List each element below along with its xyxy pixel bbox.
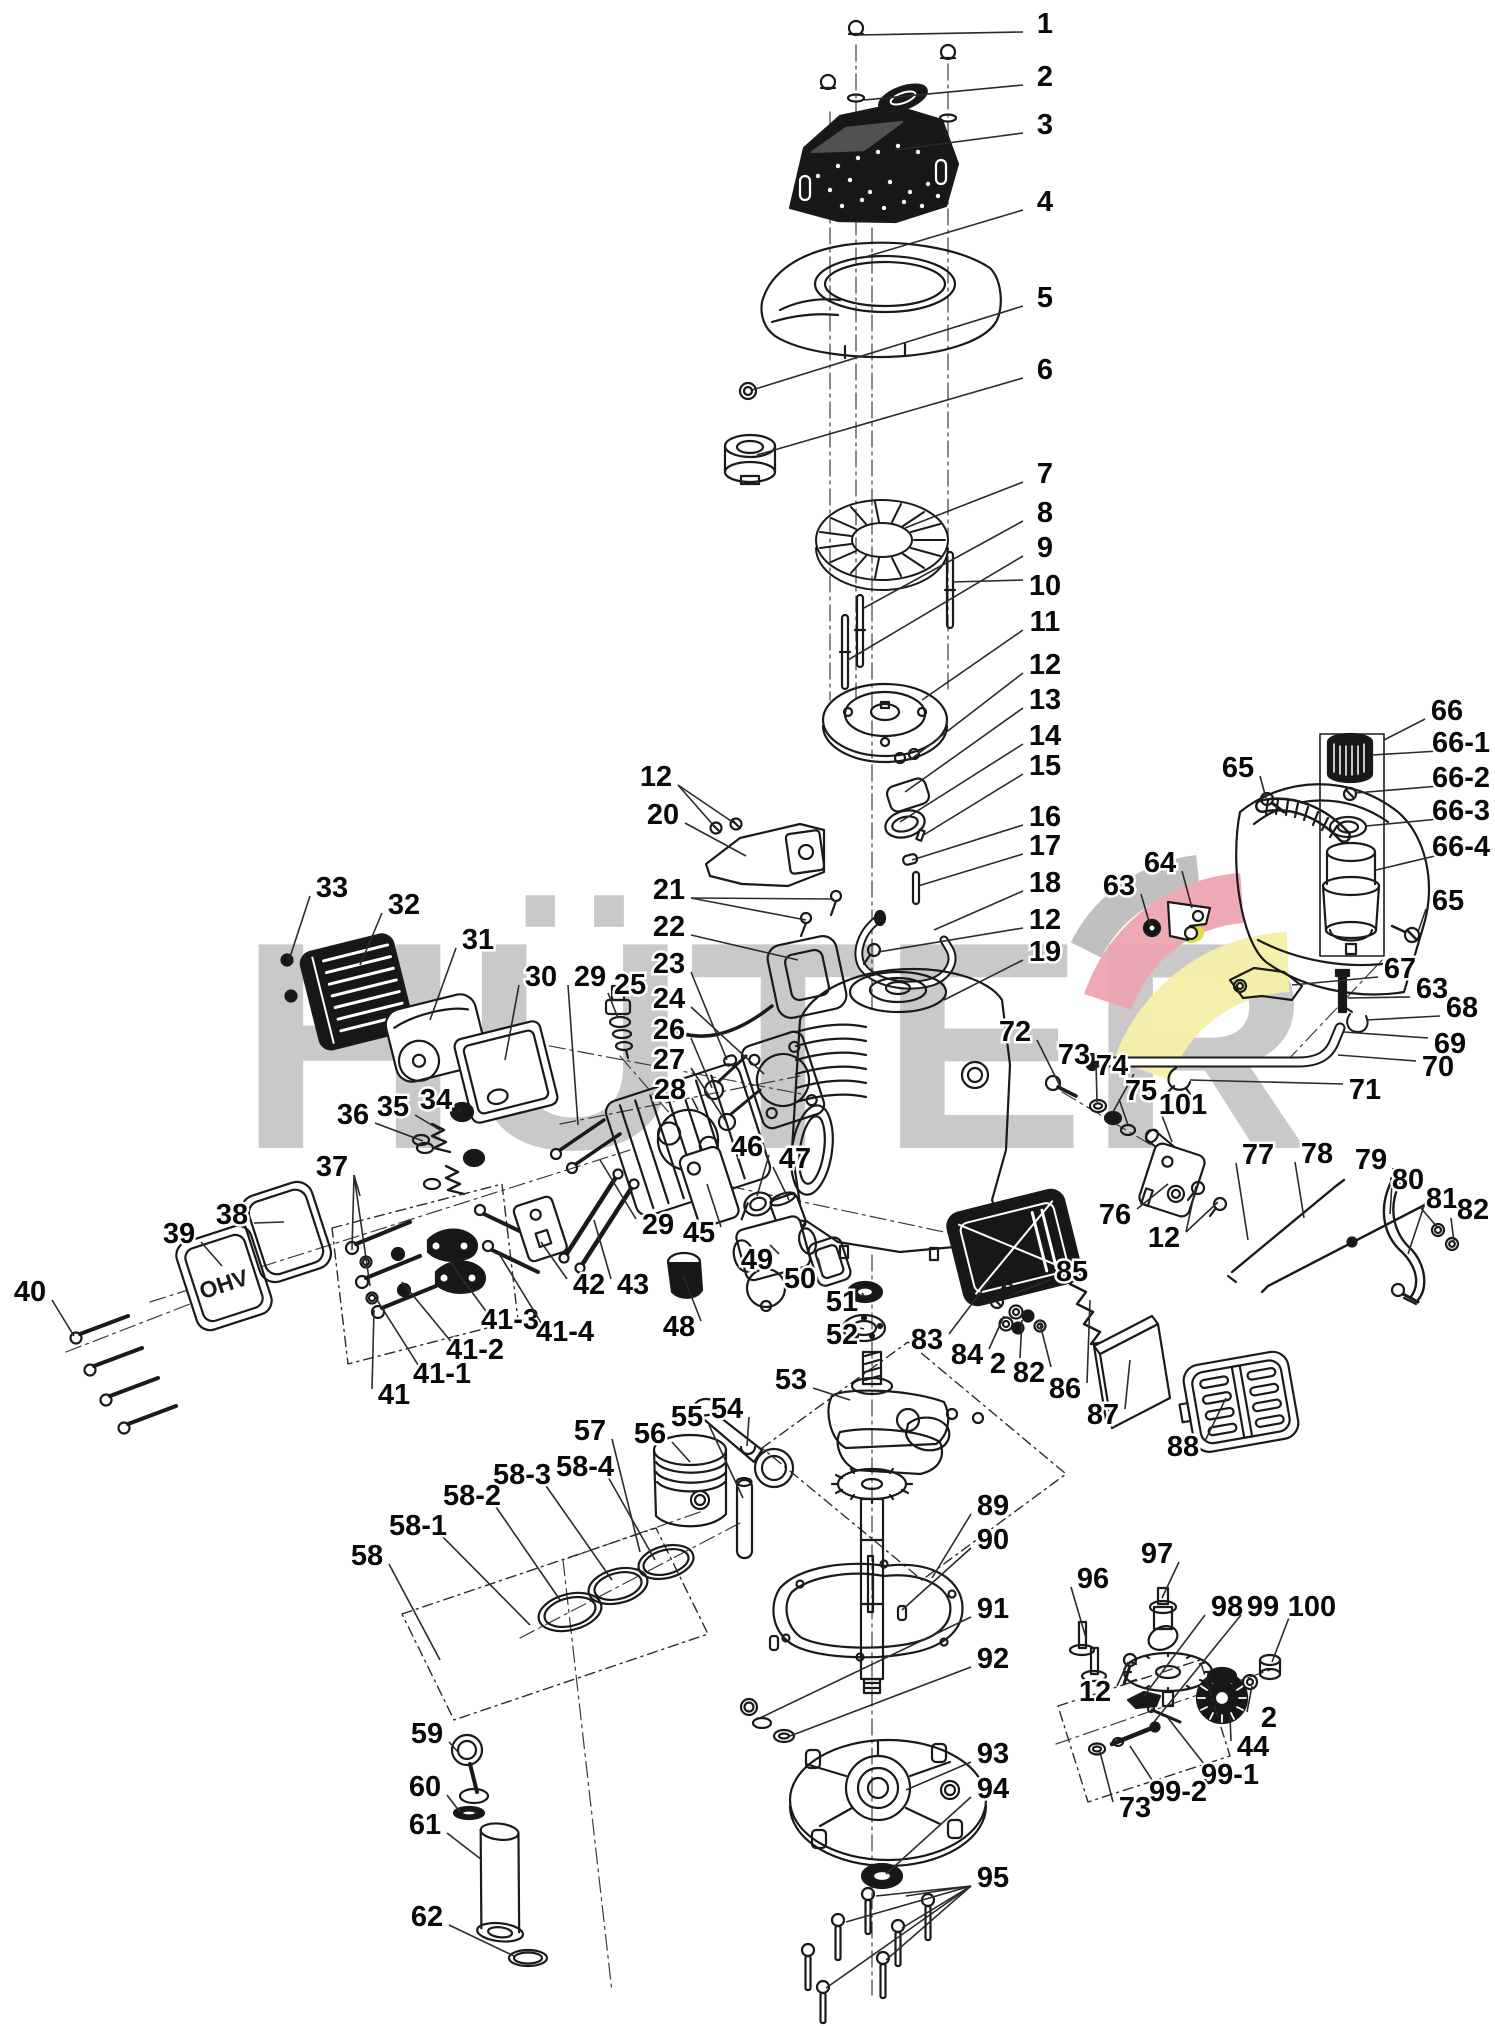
part-label-99-2: 99-2 [1149, 1776, 1207, 1808]
part-label-54: 54 [711, 1393, 743, 1425]
leader-line [886, 1886, 971, 1960]
part-label-36: 36 [337, 1099, 369, 1131]
flywheel-fan [816, 500, 948, 590]
part-label-21: 21 [653, 874, 685, 906]
part-label-86: 86 [1049, 1373, 1081, 1405]
crankshaft [694, 1342, 1066, 1693]
part-label-66: 66 [1431, 695, 1463, 727]
crankcase-cover [741, 1699, 986, 2023]
part-label-2: 2 [1261, 1702, 1277, 1734]
leader-line [1356, 786, 1439, 793]
part-label-66-4: 66-4 [1432, 831, 1490, 863]
part-label-66-2: 66-2 [1432, 762, 1490, 794]
leader-line [1366, 819, 1439, 826]
part-label-87: 87 [1087, 1399, 1119, 1431]
leader-line [254, 1222, 284, 1223]
part-label-43: 43 [617, 1269, 649, 1301]
leader-line [760, 1617, 971, 1718]
leader-line [989, 1316, 1004, 1349]
leader-line [372, 1310, 374, 1389]
part-label-95: 95 [977, 1862, 1009, 1894]
part-label-1: 1 [1037, 8, 1053, 40]
part-label-53: 53 [775, 1364, 807, 1396]
leader-line [440, 1534, 530, 1625]
part-label-14: 14 [1029, 720, 1061, 752]
part-label-94: 94 [977, 1773, 1009, 1805]
part-label-89: 89 [977, 1490, 1009, 1522]
part-label-40: 40 [14, 1276, 46, 1308]
part-label-6: 6 [1037, 354, 1053, 386]
part-label-27: 27 [653, 1044, 685, 1076]
part-label-7: 7 [1037, 458, 1053, 490]
leader-line [52, 1300, 74, 1336]
part-label-3: 3 [1037, 109, 1053, 141]
part-label-100: 100 [1288, 1591, 1336, 1623]
part-label-58: 58 [351, 1540, 383, 1572]
part-label-62: 62 [411, 1901, 443, 1933]
leader-line [447, 1833, 482, 1860]
leader-line [952, 580, 1023, 582]
part-label-31: 31 [462, 924, 494, 956]
part-label-30: 30 [525, 961, 557, 993]
leader-line [1366, 1016, 1440, 1020]
part-label-11: 11 [1030, 606, 1061, 638]
leader-line [691, 898, 834, 899]
leader-line [672, 1442, 690, 1462]
part-label-33: 33 [316, 872, 348, 904]
rocker-arm-kit [332, 1184, 538, 1364]
part-label-38: 38 [216, 1199, 248, 1231]
part-label-20: 20 [647, 799, 679, 831]
leader-line [1344, 1032, 1428, 1038]
part-label-45: 45 [683, 1217, 715, 1249]
part-label-82: 82 [1013, 1357, 1045, 1389]
leader-line [932, 1514, 971, 1578]
leader-line [826, 1886, 971, 1988]
part-label-29: 29 [574, 961, 606, 993]
part-label-92: 92 [977, 1643, 1009, 1675]
part-label-81: 81 [1426, 1183, 1458, 1215]
part-label-22: 22 [653, 911, 685, 943]
part-label-5: 5 [1037, 282, 1053, 314]
part-label-78: 78 [1301, 1138, 1333, 1170]
starter-cup [725, 435, 775, 484]
part-label-82: 82 [1457, 1194, 1489, 1226]
part-label-49: 49 [741, 1244, 773, 1276]
part-label-66-1: 66-1 [1432, 727, 1490, 759]
part-label-48: 48 [663, 1311, 695, 1343]
leader-line [790, 1667, 971, 1736]
diagram-canvas: HÜTER [0, 0, 1495, 2026]
part-label-71: 71 [1349, 1074, 1381, 1106]
part-label-99: 99 [1247, 1591, 1279, 1623]
part-label-47: 47 [779, 1143, 811, 1175]
part-label-26: 26 [653, 1014, 685, 1046]
part-label-52: 52 [826, 1319, 858, 1351]
leader-line [752, 306, 1023, 390]
part-label-61: 61 [409, 1809, 441, 1841]
part-label-59: 59 [411, 1718, 443, 1750]
part-label-2: 2 [1037, 61, 1053, 93]
part-label-41-3: 41-3 [481, 1304, 539, 1336]
flywheel-nut [740, 383, 756, 399]
leader-line [922, 630, 1023, 700]
part-label-9: 9 [1037, 532, 1053, 564]
leader-line [856, 32, 1023, 35]
part-label-72: 72 [999, 1016, 1031, 1048]
part-label-80: 80 [1392, 1164, 1424, 1196]
part-label-50: 50 [784, 1263, 816, 1295]
part-label-63: 63 [1416, 973, 1448, 1005]
part-label-42: 42 [573, 1269, 605, 1301]
part-label-77: 77 [1242, 1139, 1274, 1171]
leader-line [544, 1483, 612, 1580]
part-label-58-2: 58-2 [443, 1480, 501, 1512]
part-label-12: 12 [640, 761, 672, 793]
part-label-23: 23 [653, 948, 685, 980]
part-label-46: 46 [731, 1131, 763, 1163]
part-label-19: 19 [1029, 936, 1061, 968]
part-label-4: 4 [1037, 186, 1053, 218]
leader-line [612, 1439, 640, 1552]
part-label-2: 2 [990, 1348, 1006, 1380]
part-label-97: 97 [1141, 1538, 1173, 1570]
part-label-55: 55 [671, 1401, 703, 1433]
leader-line [886, 1797, 971, 1874]
part-label-67: 67 [1384, 953, 1416, 985]
fan-cover [762, 243, 1001, 358]
part-label-34: 34 [420, 1084, 452, 1116]
part-label-15: 15 [1029, 750, 1061, 782]
stop-switch-bracket [706, 819, 825, 887]
part-label-88: 88 [1167, 1431, 1199, 1463]
part-label-75: 75 [1125, 1075, 1157, 1107]
part-label-41-2: 41-2 [446, 1334, 504, 1366]
part-label-16: 16 [1029, 801, 1061, 833]
leader-line [607, 1475, 655, 1560]
leader-line [389, 1564, 440, 1660]
part-label-13: 13 [1029, 684, 1061, 716]
recoil-starter-cover [790, 79, 958, 222]
part-label-74: 74 [1096, 1050, 1128, 1082]
breather-cap [668, 1253, 702, 1298]
part-label-93: 93 [977, 1738, 1009, 1770]
part-label-8: 8 [1037, 497, 1053, 529]
part-label-39: 39 [163, 1218, 195, 1250]
part-label-79: 79 [1355, 1144, 1387, 1176]
cover-bolt-set [802, 1888, 934, 2023]
leader-line [1384, 719, 1425, 740]
part-label-70: 70 [1422, 1051, 1454, 1083]
part-label-66-3: 66-3 [1432, 795, 1490, 827]
leader-line [1372, 751, 1439, 755]
part-label-12: 12 [1148, 1222, 1180, 1254]
part-label-76: 76 [1099, 1199, 1131, 1231]
part-label-73: 73 [1119, 1792, 1151, 1824]
leader-line [1230, 1716, 1231, 1741]
leader-line [910, 673, 1023, 760]
part-label-99-1: 99-1 [1201, 1759, 1259, 1791]
leader-line [1348, 997, 1410, 998]
oil-dipstick [452, 1735, 547, 1966]
part-label-41-4: 41-4 [536, 1316, 594, 1348]
part-label-73: 73 [1058, 1039, 1090, 1071]
part-label-25: 25 [614, 969, 646, 1001]
leader-line [864, 521, 1023, 608]
part-label-58-1: 58-1 [389, 1510, 447, 1542]
part-label-58-3: 58-3 [493, 1459, 551, 1491]
part-label-24: 24 [653, 983, 685, 1015]
part-label-12: 12 [1079, 1676, 1111, 1708]
part-label-58-4: 58-4 [556, 1451, 614, 1483]
part-label-17: 17 [1029, 830, 1061, 862]
part-label-91: 91 [977, 1593, 1009, 1625]
leader-line [494, 1504, 560, 1600]
part-label-83: 83 [911, 1324, 943, 1356]
part-label-101: 101 [1159, 1089, 1207, 1121]
part-label-10: 10 [1029, 570, 1061, 602]
part-label-35: 35 [377, 1091, 409, 1123]
leader-line [447, 1795, 460, 1812]
leader-line [860, 1328, 864, 1329]
part-label-12: 12 [1029, 649, 1061, 681]
part-label-85: 85 [1056, 1256, 1088, 1288]
part-label-32: 32 [388, 889, 420, 921]
part-label-64: 64 [1144, 847, 1176, 879]
leader-line [1376, 855, 1439, 870]
part-label-65: 65 [1432, 885, 1464, 917]
part-label-28: 28 [654, 1074, 686, 1106]
part-label-56: 56 [634, 1418, 666, 1450]
part-label-84: 84 [951, 1339, 983, 1371]
leader-line [905, 482, 1023, 528]
leader-line [922, 774, 1023, 836]
part-label-90: 90 [977, 1524, 1009, 1556]
part-label-57: 57 [574, 1415, 606, 1447]
part-label-60: 60 [409, 1771, 441, 1803]
leader-line [1100, 1752, 1113, 1802]
part-label-12: 12 [1029, 904, 1061, 936]
leader-line [757, 378, 1023, 455]
part-label-41: 41 [378, 1379, 410, 1411]
part-label-68: 68 [1446, 992, 1478, 1024]
cylinder-studs [840, 552, 955, 689]
part-label-29: 29 [642, 1209, 674, 1241]
part-label-18: 18 [1029, 867, 1061, 899]
part-label-96: 96 [1077, 1563, 1109, 1595]
leader-line [1087, 1300, 1090, 1383]
leader-line [1338, 1055, 1416, 1061]
part-label-51: 51 [826, 1286, 858, 1318]
leader-line [912, 825, 1023, 860]
part-label-37: 37 [316, 1151, 348, 1183]
part-label-63: 63 [1103, 870, 1135, 902]
part-label-65: 65 [1222, 752, 1254, 784]
